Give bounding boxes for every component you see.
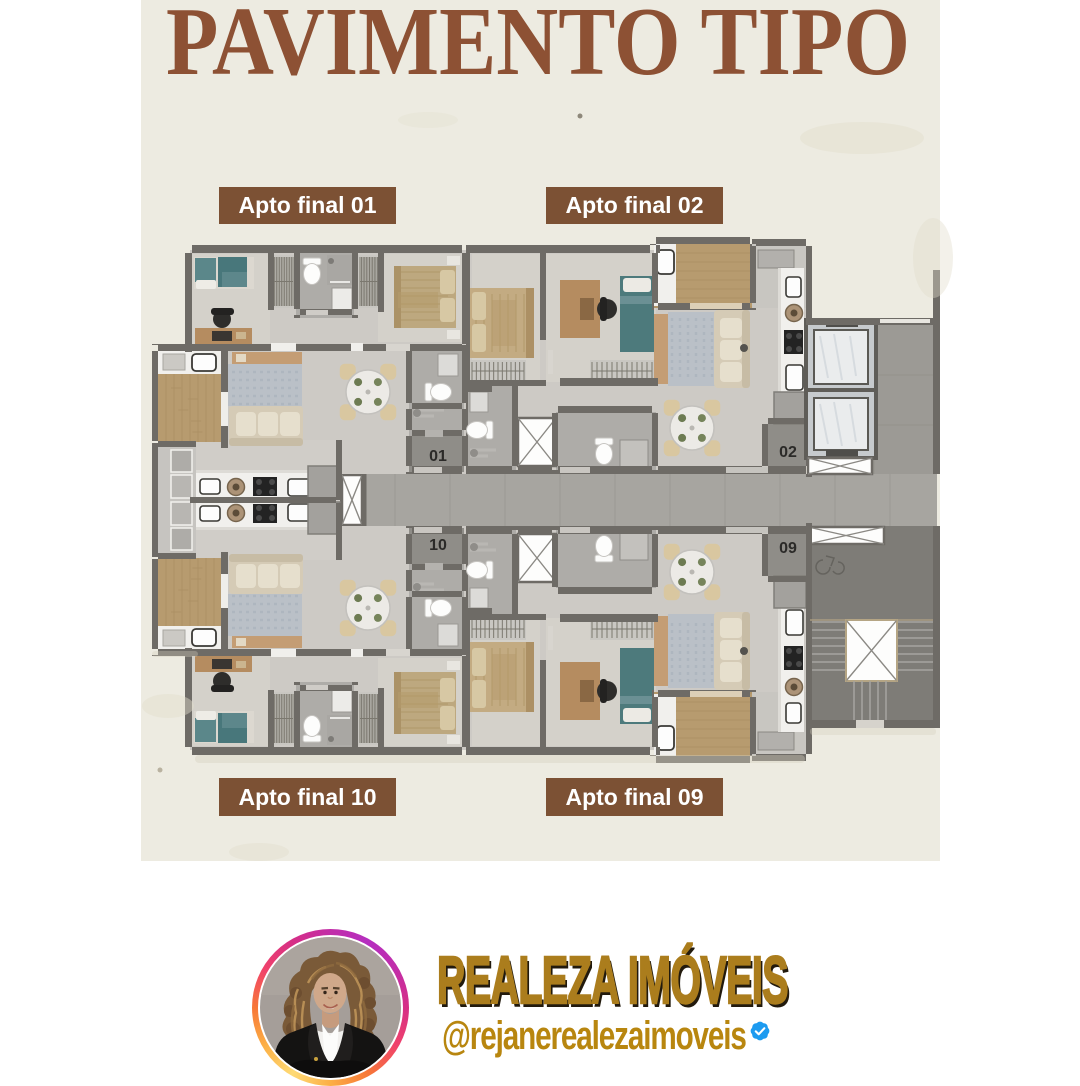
svg-text:10: 10 [429, 537, 447, 554]
svg-text:01: 01 [429, 448, 447, 465]
svg-text:02: 02 [779, 444, 797, 461]
svg-text:09: 09 [779, 540, 797, 557]
